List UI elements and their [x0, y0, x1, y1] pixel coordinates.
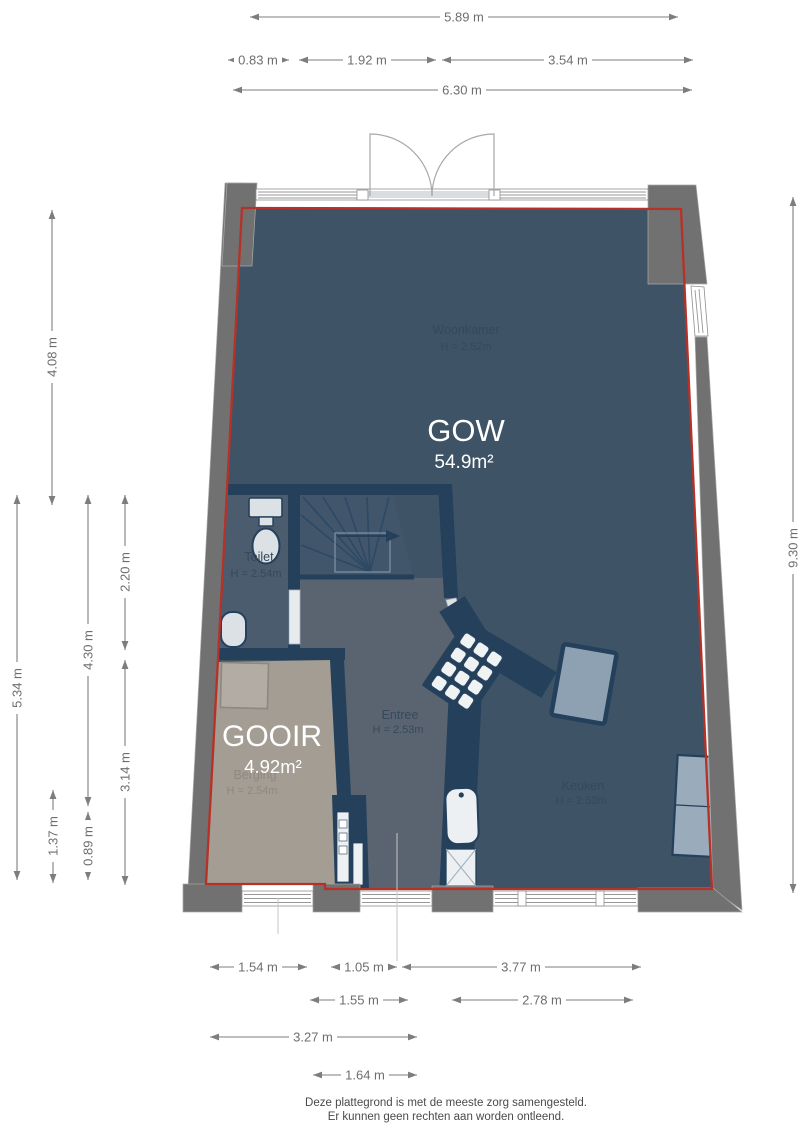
toilet-door: [289, 590, 300, 644]
overlay-gow-code: GOW: [427, 413, 505, 448]
dishwasher-icon: [446, 849, 476, 886]
dimension-label: 3.14 m: [118, 752, 133, 792]
disclaimer-line1: Deze plattegrond is met de meeste zorg s…: [305, 1096, 587, 1110]
overlay-gow-area: 54.9m²: [434, 452, 493, 473]
dimension-label: 1.05 m: [344, 960, 384, 975]
dimension-top-3-54: 3.54 m: [442, 52, 693, 68]
dimension-label: 0.89 m: [81, 826, 96, 866]
kitchen-island-icon: [551, 644, 617, 724]
dimension-label: 3.77 m: [501, 960, 541, 975]
dimension-label: 6.30 m: [442, 83, 482, 98]
dimension-label: 1.64 m: [345, 1068, 385, 1083]
dimension-label: 3.27 m: [293, 1030, 333, 1045]
bottom-left-wall-block: [183, 884, 242, 912]
dimension-label: 5.34 m: [10, 668, 25, 708]
door-post-left: [357, 190, 368, 200]
hand-basin-icon: [221, 612, 246, 647]
dimension-label: 5.89 m: [444, 10, 484, 25]
dimension-label: 2.20 m: [118, 552, 133, 592]
floorplan-drawing: Woonkamer H = 2.52m Toilet H = 2.54m Ent…: [0, 0, 811, 1135]
dimension-left-5-34: 5.34 m: [9, 495, 25, 880]
room-label-toilet: Toilet: [244, 550, 274, 564]
sink-icon: [445, 787, 479, 844]
dimension-bottom-1-64: 1.64 m: [313, 1067, 417, 1083]
room-height-berging: H = 2.54m: [226, 785, 277, 797]
dimension-label: 1.37 m: [46, 816, 61, 856]
overlay-gooir-area: 4.92m²: [244, 756, 302, 777]
room-height-keuken: H = 2.53m: [555, 795, 606, 807]
room-label-woonkamer: Woonkamer: [432, 323, 499, 337]
dimension-bottom-1-54: 1.54 m: [210, 959, 307, 975]
dimension-label: 2.78 m: [522, 993, 562, 1008]
dimension-top-5-89: 5.89 m: [250, 9, 678, 25]
room-height-entree: H = 2.53m: [372, 724, 423, 736]
room-label-keuken: Keuken: [562, 779, 604, 793]
dimension-bottom-3-77: 3.77 m: [402, 959, 641, 975]
french-door-left-swing: [370, 134, 432, 196]
dimension-label: 9.30 m: [786, 528, 801, 568]
dimension-right-9-30: 9.30 m: [785, 197, 801, 893]
floor-plan: Woonkamer H = 2.52m Toilet H = 2.54m Ent…: [183, 134, 742, 912]
dimension-label: 4.08 m: [45, 337, 60, 377]
dimension-bottom-3-27: 3.27 m: [210, 1029, 417, 1045]
room-height-woonkamer: H = 2.52m: [440, 341, 491, 353]
floorplan-page: Woonkamer H = 2.52m Toilet H = 2.54m Ent…: [0, 0, 811, 1135]
dimension-label: 4.30 m: [81, 630, 96, 670]
dimension-label: 3.54 m: [548, 53, 588, 68]
dimension-left-4-08: 4.08 m: [44, 210, 60, 505]
dimension-bottom-1-05: 1.05 m: [331, 959, 397, 975]
room-label-entree: Entree: [382, 708, 419, 722]
storage-box-icon: [220, 662, 268, 708]
dimension-left-1-37: 1.37 m: [45, 790, 61, 883]
top-right-wall-block: [648, 185, 707, 284]
dimension-left-2-20: 2.20 m: [117, 495, 133, 650]
dimension-left-4-30: 4.30 m: [80, 495, 96, 806]
disclaimer-line2: Er kunnen geen rechten aan worden ontlee…: [305, 1110, 587, 1124]
dimension-label: 1.54 m: [238, 960, 278, 975]
dimension-bottom-1-55: 1.55 m: [310, 992, 408, 1008]
dimension-bottom-2-78: 2.78 m: [452, 992, 633, 1008]
dimension-top-6-30: 6.30 m: [233, 82, 692, 98]
top-facade: [256, 134, 648, 200]
dimension-top-1-92: 1.92 m: [299, 52, 436, 68]
dimension-label: 1.92 m: [347, 53, 387, 68]
door-sill: [368, 191, 490, 198]
dimension-left-0-89: 0.89 m: [80, 812, 96, 880]
room-label-mk: MK: [337, 796, 355, 810]
disclaimer: Deze plattegrond is met de meeste zorg s…: [305, 1096, 587, 1124]
right-window: [691, 286, 708, 336]
overlay-gooir-code: GOOIR: [222, 720, 322, 753]
dimension-top-0-83: 0.83 m: [228, 52, 289, 68]
room-height-toilet: H = 2.54m: [230, 568, 281, 580]
dimension-label: 1.55 m: [339, 993, 379, 1008]
dimension-label: 0.83 m: [238, 53, 278, 68]
french-door-right-swing: [432, 134, 494, 196]
dimension-left-3-14: 3.14 m: [117, 660, 133, 885]
